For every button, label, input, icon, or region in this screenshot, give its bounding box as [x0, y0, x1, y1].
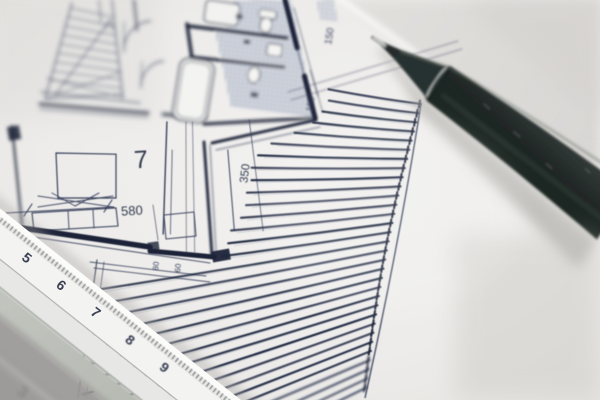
svg-text:80: 80	[151, 261, 161, 271]
svg-text:580: 580	[121, 203, 143, 219]
svg-text:60: 60	[173, 263, 183, 273]
svg-text:7: 7	[133, 145, 149, 174]
svg-text:350: 350	[238, 163, 252, 184]
